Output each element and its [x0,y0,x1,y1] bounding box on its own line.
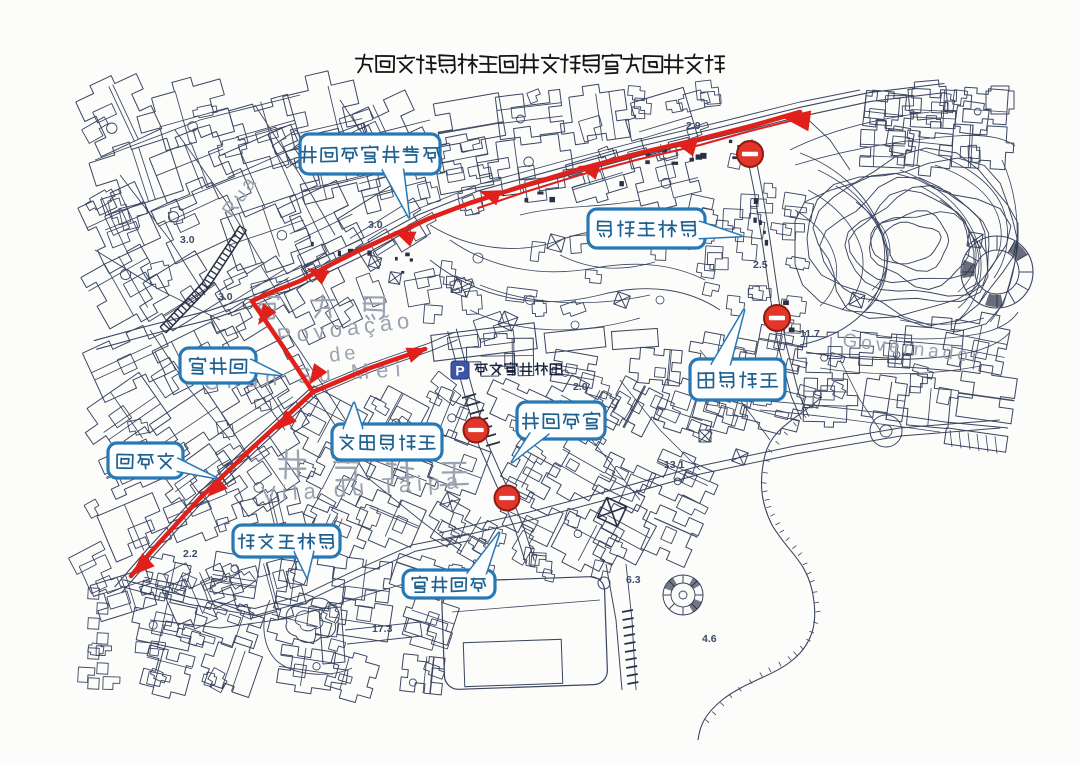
svg-text:2.9: 2.9 [686,120,701,132]
svg-text:2.2: 2.2 [183,548,198,560]
svg-text:3.0: 3.0 [180,234,195,246]
svg-text:13.1: 13.1 [664,459,685,471]
svg-text:17.3: 17.3 [372,623,393,635]
svg-text:6.3: 6.3 [626,574,641,586]
svg-text:2.5: 2.5 [753,259,768,271]
svg-text:11.7: 11.7 [800,328,820,340]
svg-text:3.0: 3.0 [368,219,383,231]
svg-text:3.0: 3.0 [218,291,233,303]
svg-text:4.6: 4.6 [702,633,717,645]
svg-text:P: P [455,363,464,379]
svg-text:2.0: 2.0 [573,381,588,393]
